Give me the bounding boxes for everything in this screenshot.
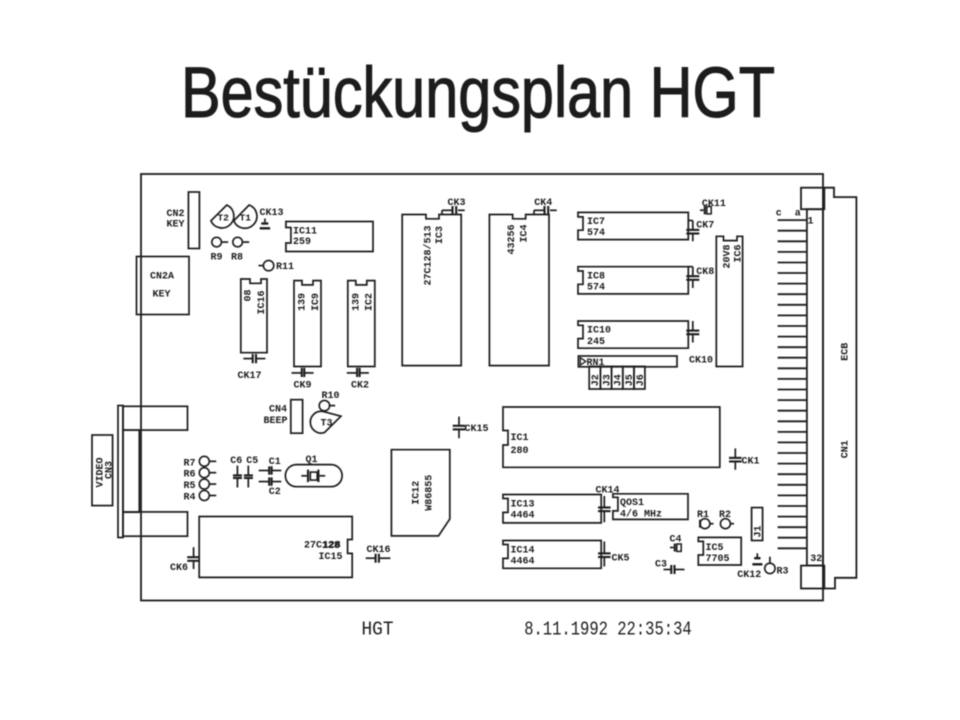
svg-text:IC7: IC7 (587, 217, 605, 228)
svg-text:IC1: IC1 (511, 433, 529, 444)
svg-text:4464: 4464 (511, 511, 535, 522)
svg-text:HGT: HGT (362, 619, 394, 641)
svg-text:IC11: IC11 (293, 227, 317, 238)
svg-text:IC9: IC9 (311, 293, 322, 311)
svg-text:CK5: CK5 (612, 554, 630, 565)
svg-text:IC2: IC2 (365, 293, 376, 311)
svg-text:1: 1 (808, 216, 814, 227)
svg-text:BEEP: BEEP (264, 416, 288, 427)
svg-text:IC16: IC16 (257, 290, 268, 314)
svg-text:CK4: CK4 (534, 198, 552, 209)
svg-text:27C128/513: 27C128/513 (423, 225, 435, 285)
svg-text:IC6: IC6 (733, 244, 744, 262)
svg-text:CN1: CN1 (840, 440, 851, 458)
svg-text:IC14: IC14 (511, 546, 535, 557)
svg-text:KEY: KEY (153, 290, 171, 301)
svg-text:574: 574 (587, 228, 605, 239)
svg-text:574: 574 (587, 282, 605, 293)
svg-text:J6: J6 (636, 374, 647, 386)
svg-text:CK9: CK9 (294, 381, 312, 392)
svg-text:T1: T1 (240, 213, 252, 224)
svg-text:CK8: CK8 (696, 267, 714, 278)
svg-text:43256: 43256 (507, 224, 518, 254)
svg-text:IC10: IC10 (587, 326, 611, 337)
svg-text:128: 128 (322, 541, 340, 552)
svg-text:KEY: KEY (167, 220, 185, 231)
svg-text:R8: R8 (231, 252, 243, 263)
svg-text:08: 08 (244, 289, 255, 301)
svg-text:139: 139 (298, 293, 309, 311)
svg-text:CK13: CK13 (260, 208, 284, 219)
svg-text:CN2A: CN2A (150, 272, 174, 283)
svg-text:R4: R4 (184, 493, 196, 504)
svg-text:CK14: CK14 (596, 486, 620, 497)
svg-text:R7: R7 (184, 458, 196, 469)
svg-text:IC8: IC8 (587, 271, 605, 282)
svg-text:7705: 7705 (706, 554, 730, 565)
svg-text:CK10: CK10 (689, 356, 713, 367)
svg-text:IC12: IC12 (412, 481, 423, 505)
svg-text:T3: T3 (321, 419, 333, 430)
svg-text:139: 139 (352, 293, 363, 311)
svg-text:4/6 MHz: 4/6 MHz (620, 509, 662, 521)
svg-text:IC15: IC15 (319, 552, 343, 563)
svg-text:R3: R3 (777, 567, 789, 578)
svg-text:IC13: IC13 (511, 500, 535, 511)
svg-text:CN3: CN3 (105, 461, 116, 479)
svg-text:32: 32 (810, 554, 822, 565)
svg-text:C2: C2 (269, 487, 281, 498)
svg-text:IC5: IC5 (706, 543, 724, 554)
svg-text:IC3: IC3 (435, 226, 446, 244)
svg-text:R5: R5 (184, 481, 196, 492)
svg-text:IC4: IC4 (520, 224, 531, 242)
svg-text:CK15: CK15 (465, 424, 489, 435)
svg-text:280: 280 (511, 446, 529, 457)
svg-text:R11: R11 (276, 262, 294, 273)
svg-text:R9: R9 (211, 252, 223, 263)
svg-text:CK7: CK7 (696, 221, 714, 232)
svg-text:R6: R6 (184, 470, 196, 481)
svg-text:CN4: CN4 (269, 405, 287, 416)
svg-text:CK2: CK2 (351, 381, 369, 392)
svg-text:C5: C5 (246, 456, 258, 467)
svg-text:20V8: 20V8 (722, 244, 733, 268)
svg-text:C1: C1 (269, 457, 281, 468)
svg-text:CN2: CN2 (167, 209, 185, 220)
svg-text:T2: T2 (218, 213, 230, 224)
svg-text:QOS1: QOS1 (620, 498, 644, 509)
svg-text:CK6: CK6 (170, 563, 188, 574)
svg-text:CK1: CK1 (742, 457, 760, 468)
svg-text:CK12: CK12 (737, 570, 761, 581)
svg-text:a: a (795, 209, 801, 220)
svg-text:C6: C6 (230, 456, 242, 467)
svg-text:245: 245 (587, 337, 605, 348)
svg-text:Bestückungsplan HGT: Bestückungsplan HGT (181, 54, 775, 133)
svg-text:8.11.1992 22:35:34: 8.11.1992 22:35:34 (524, 619, 692, 641)
svg-text:4464: 4464 (511, 557, 535, 568)
svg-text:W86855: W86855 (425, 475, 436, 511)
svg-text:c: c (776, 209, 782, 220)
svg-text:259: 259 (293, 237, 311, 248)
svg-text:ECB: ECB (840, 343, 851, 361)
svg-text:CK17: CK17 (238, 371, 262, 382)
svg-text:J1: J1 (754, 525, 765, 537)
